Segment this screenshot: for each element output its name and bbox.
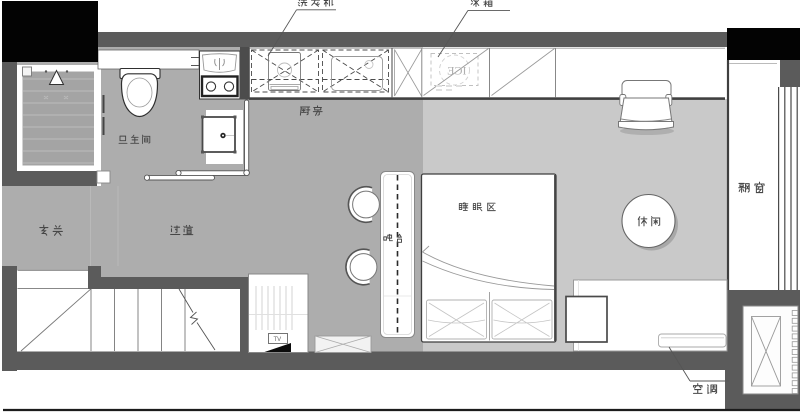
svg-text:TV: TV bbox=[274, 337, 282, 343]
svg-text:ICE: ICE bbox=[447, 64, 466, 78]
